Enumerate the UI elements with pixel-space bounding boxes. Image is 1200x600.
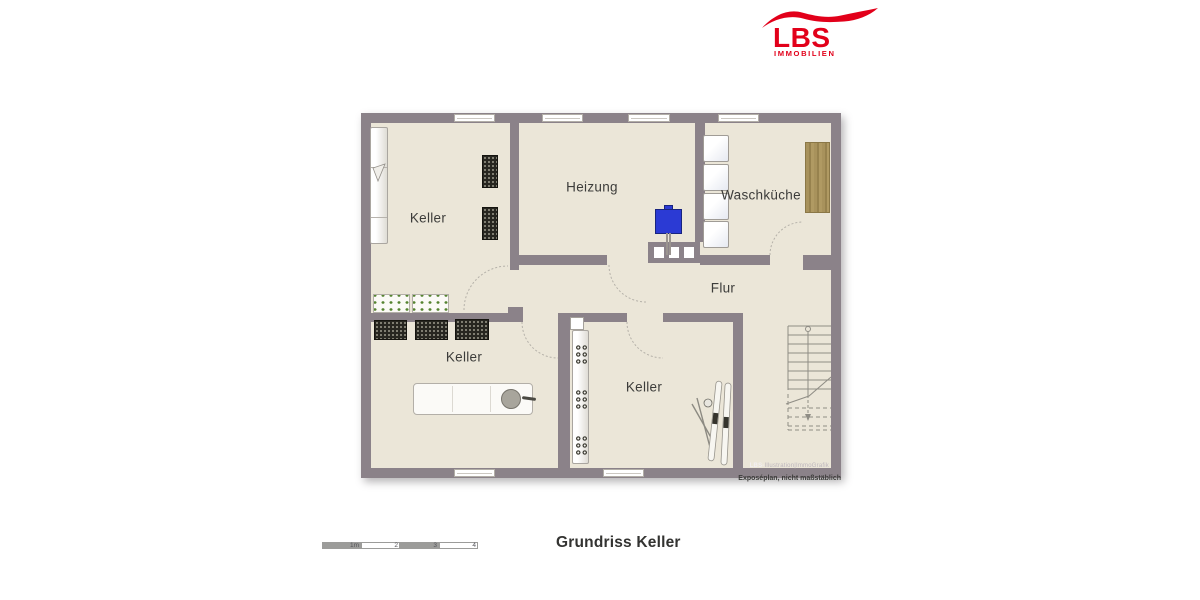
- page-title: Grundriss Keller: [556, 534, 681, 552]
- scale-segment: 2: [361, 542, 400, 549]
- scale-label: 1m: [350, 542, 359, 550]
- scale-bar: 1m 2 3 4: [322, 542, 479, 549]
- page: LBS IMMOBILIEN: [0, 0, 1200, 600]
- lbs-logo: LBS IMMOBILIEN: [758, 5, 880, 59]
- plan-vector-layer: [361, 113, 841, 478]
- staircase: [786, 326, 831, 430]
- scale-segment: 1m: [322, 542, 361, 549]
- scale-label: 2: [394, 542, 398, 550]
- skis-icon: [692, 381, 731, 465]
- door-arc-keller-top: [464, 266, 508, 310]
- door-arc-keller-bottom-left: [522, 322, 558, 358]
- shelf-item-icon: [373, 164, 385, 181]
- scale-segment: 3: [400, 542, 439, 549]
- door-arc-keller-bottom-middle: [627, 322, 663, 358]
- scale-segment: 4: [439, 542, 478, 549]
- scale-label: 4: [472, 542, 476, 550]
- logo-subtext: IMMOBILIEN: [774, 49, 836, 58]
- scale-label: 3: [433, 542, 437, 550]
- floor-plan: Keller Heizung Waschküche Flur Keller Ke…: [361, 113, 841, 478]
- door-arc-heizung: [609, 265, 646, 302]
- door-arc-waschkueche: [770, 222, 803, 255]
